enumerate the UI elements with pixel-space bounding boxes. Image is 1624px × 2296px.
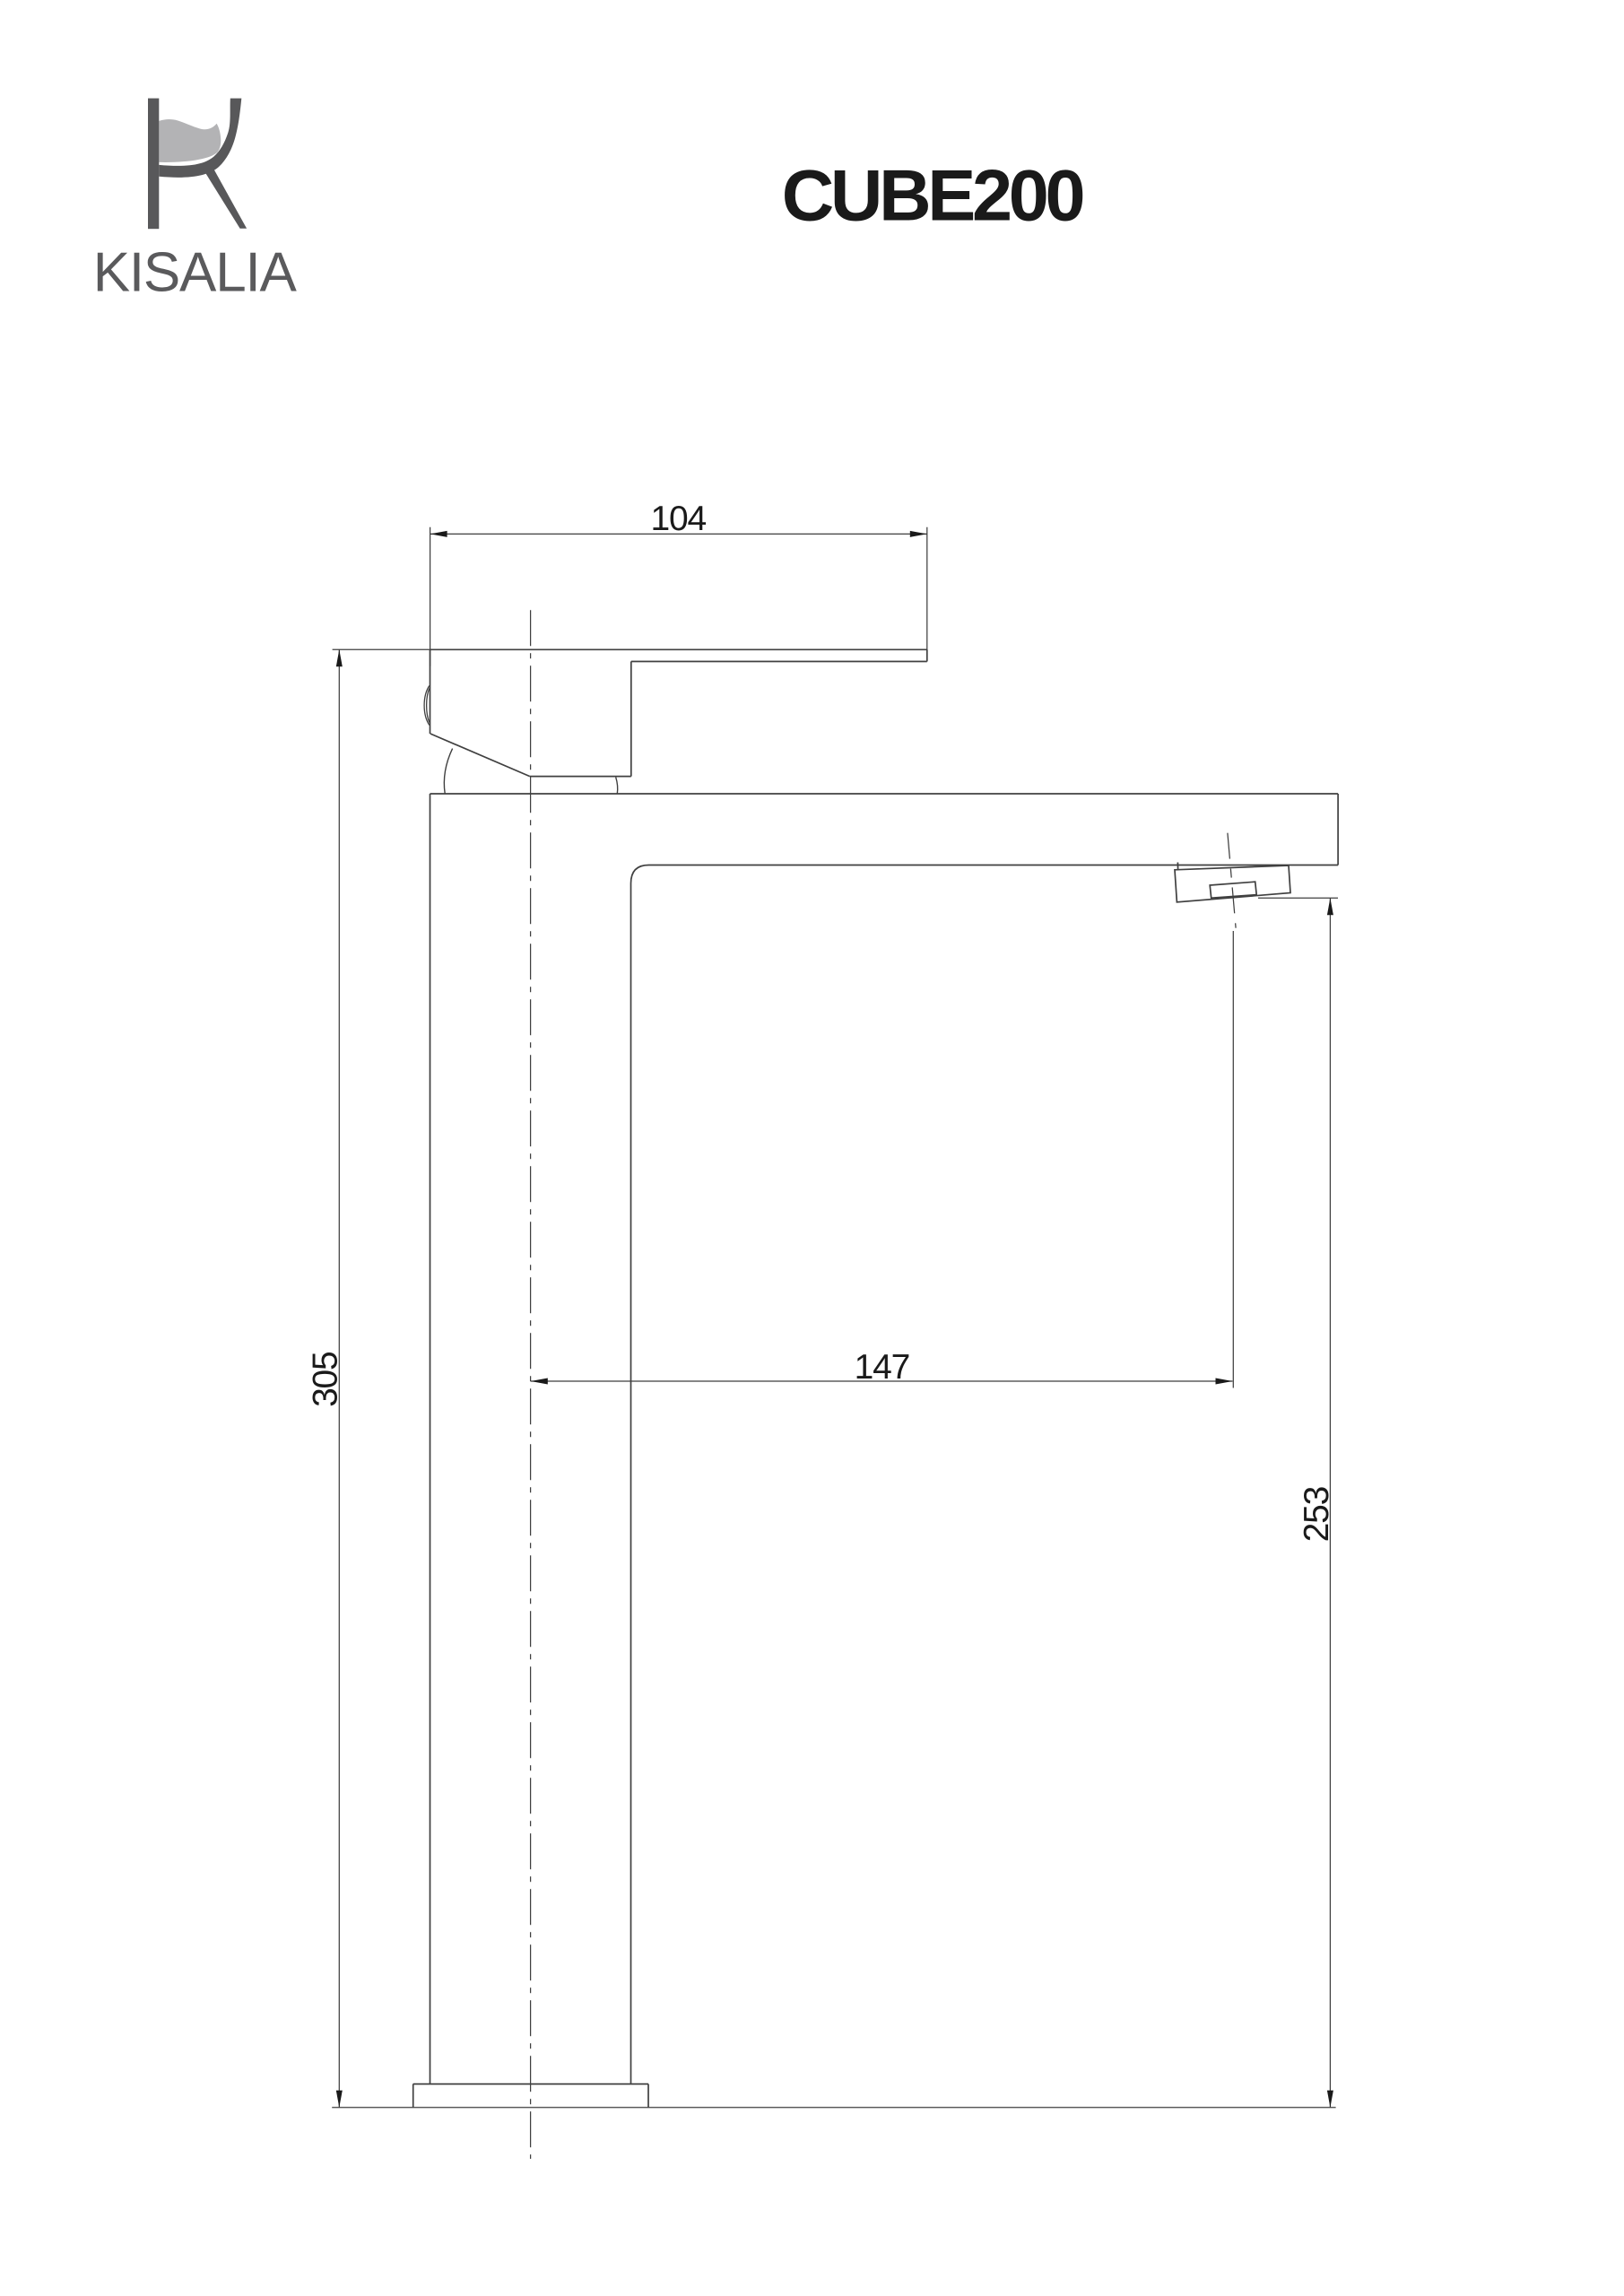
svg-text:147: 147: [855, 1348, 909, 1387]
svg-text:253: 253: [1298, 1487, 1336, 1542]
svg-text:104: 104: [651, 500, 707, 538]
svg-text:305: 305: [307, 1352, 345, 1407]
svg-text:KISALIA: KISALIA: [93, 241, 298, 303]
svg-text:CUBE200: CUBE200: [782, 156, 1083, 237]
